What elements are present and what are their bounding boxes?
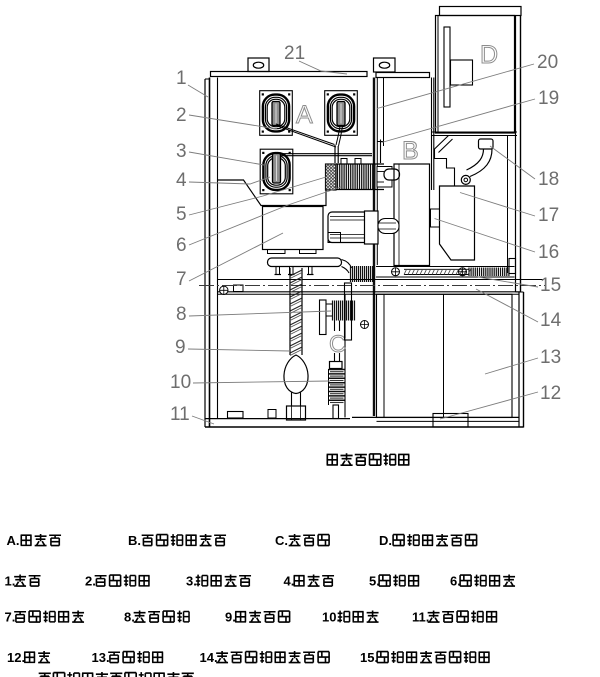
svg-text:16: 16	[538, 242, 559, 263]
svg-text:3.: 3.	[186, 574, 197, 589]
svg-text:11: 11	[170, 404, 190, 425]
svg-text:6.: 6.	[450, 574, 461, 589]
svg-text:2.: 2.	[85, 574, 96, 589]
svg-text:5: 5	[176, 204, 187, 225]
svg-text:D: D	[480, 41, 498, 69]
svg-text:3: 3	[176, 141, 187, 162]
svg-text:B.: B.	[128, 533, 141, 548]
svg-text:4: 4	[176, 170, 187, 191]
svg-text:14: 14	[540, 310, 562, 331]
svg-text:17: 17	[538, 205, 559, 226]
svg-text:2: 2	[176, 105, 187, 126]
svg-text:10: 10	[170, 372, 191, 393]
svg-text:4.: 4.	[284, 574, 295, 589]
svg-text:13: 13	[540, 347, 561, 368]
svg-text:C: C	[329, 331, 346, 358]
svg-text:19: 19	[538, 88, 559, 109]
svg-text:15.: 15.	[360, 650, 378, 665]
svg-text:10.: 10.	[322, 610, 340, 625]
svg-text:8: 8	[176, 304, 187, 325]
svg-text:8.: 8.	[124, 610, 135, 625]
svg-text:7: 7	[176, 269, 187, 290]
svg-text:B: B	[402, 137, 419, 165]
svg-text:D.: D.	[379, 533, 392, 548]
svg-text:A: A	[296, 101, 313, 129]
svg-text:9: 9	[175, 337, 186, 358]
svg-text:5.: 5.	[369, 574, 380, 589]
svg-text:1.: 1.	[5, 574, 16, 589]
svg-text:1: 1	[176, 68, 187, 89]
svg-text:20: 20	[537, 52, 558, 73]
svg-text:A.: A.	[7, 533, 20, 548]
svg-text:6: 6	[176, 235, 187, 256]
svg-text:7.: 7.	[5, 610, 16, 625]
svg-text:18: 18	[538, 169, 559, 190]
svg-text:21: 21	[284, 43, 305, 64]
svg-text:12: 12	[540, 383, 561, 404]
svg-text:13.: 13.	[92, 650, 110, 665]
svg-text:14.: 14.	[200, 650, 218, 665]
svg-text:C.: C.	[275, 533, 288, 548]
svg-text:9.: 9.	[225, 610, 236, 625]
svg-text:12.: 12.	[7, 650, 25, 665]
svg-text:11.: 11.	[412, 610, 429, 625]
svg-text:15: 15	[540, 275, 561, 296]
